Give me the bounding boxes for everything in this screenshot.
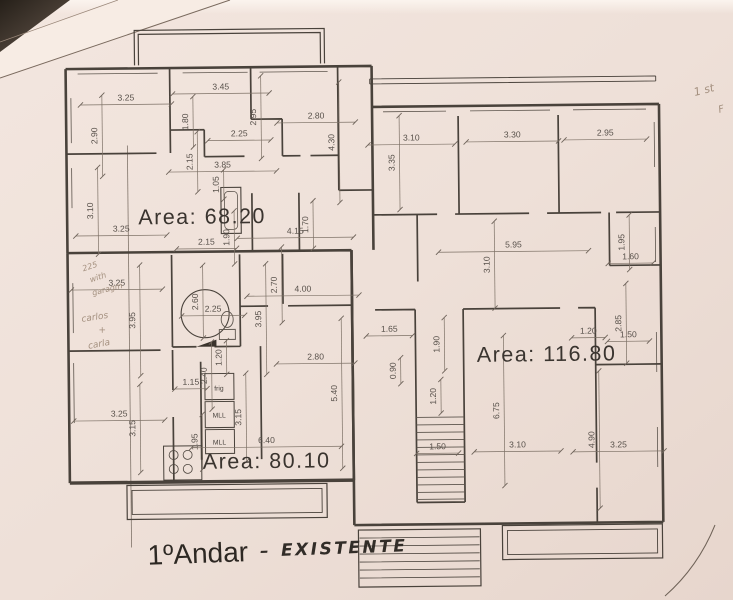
dimension-label: 2.70 <box>269 276 279 293</box>
dimension-label: 3.10 <box>509 439 526 449</box>
dimension-label: 2.15 <box>198 237 215 247</box>
dimension-label: 3.30 <box>504 129 521 139</box>
dimension-label: 1.15 <box>182 377 199 387</box>
dimension-label: 2.40 <box>199 367 209 384</box>
dimension-label: 3.15 <box>233 409 243 426</box>
dimension-label: 3.35 <box>386 154 396 171</box>
dimension-label: 0.90 <box>388 362 398 379</box>
dimension-label: 2.95 <box>248 109 258 126</box>
dimension-label: 2.60 <box>190 293 200 310</box>
dimension-label: 3.25 <box>111 409 128 419</box>
dimension-label: 6.40 <box>258 435 275 445</box>
dimension-label: 1.20 <box>580 326 597 336</box>
dimension-label: 3.10 <box>403 132 420 142</box>
dimension-label: 1.60 <box>622 251 639 261</box>
dimension-label: 2.95 <box>597 127 614 137</box>
dimension-label: 3.10 <box>482 256 492 273</box>
area-label: Area: 68.20 <box>138 204 266 229</box>
handwritten-note: + <box>98 326 106 336</box>
scanned-floor-plan-page: 3.252.903.451.802.952.252.804.302.153.85… <box>0 0 733 600</box>
area-label: Area: 116.80 <box>477 341 617 366</box>
dimension-label: 3.10 <box>85 202 95 219</box>
dimension-label: 1.95 <box>616 234 626 251</box>
dimension-label: 1.50 <box>429 441 446 451</box>
fixture-label: frig <box>214 385 224 392</box>
dimension-label: 1.90 <box>221 229 231 246</box>
dimension-label: 4.90 <box>586 431 596 448</box>
dimension-label: 5.40 <box>329 385 339 402</box>
dimension-label: 2.90 <box>89 127 99 144</box>
floor-plan-drawing: 3.252.903.451.802.952.252.804.302.153.85… <box>0 0 733 600</box>
dimension-label: 1.90 <box>431 336 441 353</box>
dimension-label: 1.80 <box>180 113 190 130</box>
dimension-label: 3.45 <box>212 81 229 91</box>
paper-background <box>0 0 733 600</box>
dimension-label: 3.25 <box>117 92 134 102</box>
dimension-label: 2.80 <box>307 351 324 361</box>
dimension-label: 4.00 <box>294 284 311 294</box>
fixture-label: MLL <box>213 439 227 446</box>
dimension-label: 1.05 <box>211 176 221 193</box>
dimension-label: 3.25 <box>610 439 627 449</box>
dimension-label: 1.65 <box>381 324 398 334</box>
dimension-label: 6.75 <box>491 402 501 419</box>
fixture-label: MLL <box>213 412 227 419</box>
dimension-label: 2.25 <box>205 304 222 314</box>
dimension-label: 2.80 <box>308 110 325 120</box>
area-label: Area: 80.10 <box>203 448 331 473</box>
dimension-label: 1.20 <box>214 349 224 366</box>
dimension-label: 3.15 <box>127 420 137 437</box>
dimension-label: 4.30 <box>326 134 336 151</box>
dimension-label: 3.25 <box>113 223 130 233</box>
dimension-label: 2.15 <box>184 153 194 170</box>
dimension-label: 3.85 <box>214 159 231 169</box>
dimension-label: 1.70 <box>300 216 310 233</box>
dimension-label: 2.25 <box>231 128 248 138</box>
dimension-label: 1.50 <box>620 329 637 339</box>
dimension-label: 3.95 <box>253 310 263 327</box>
dimension-label: 1.20 <box>428 388 438 405</box>
dimension-label: 5.95 <box>505 239 522 249</box>
dimension-label: 3.95 <box>127 312 137 329</box>
